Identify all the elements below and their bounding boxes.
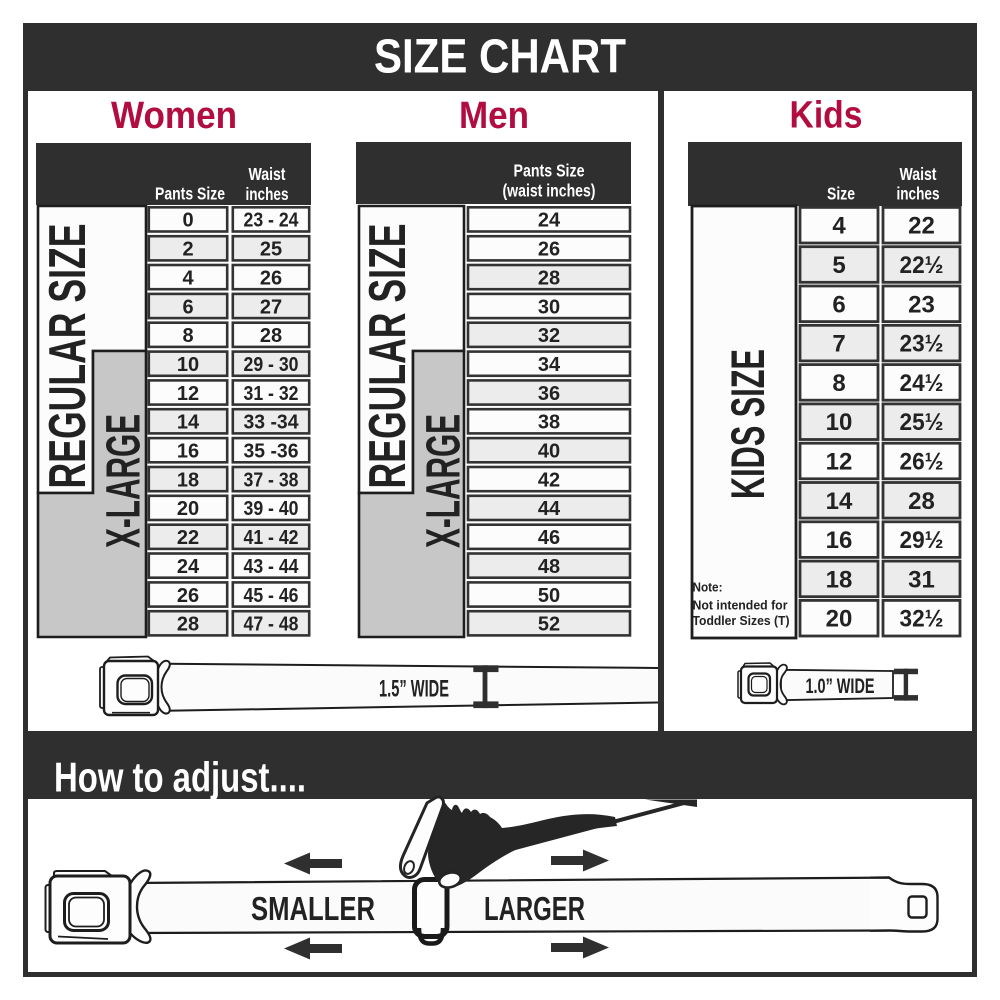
svg-text:How to adjust....: How to adjust....: [54, 754, 306, 801]
svg-text:26: 26: [538, 239, 560, 261]
svg-text:24: 24: [538, 210, 561, 232]
svg-text:52: 52: [538, 614, 560, 636]
svg-text:26½: 26½: [900, 449, 944, 476]
svg-text:4: 4: [182, 267, 194, 289]
svg-text:16: 16: [826, 527, 853, 554]
svg-text:14: 14: [826, 488, 853, 515]
svg-text:22½: 22½: [900, 252, 944, 279]
svg-text:1.5” WIDE: 1.5” WIDE: [379, 676, 449, 703]
svg-text:41 - 42: 41 - 42: [244, 527, 299, 549]
svg-text:23: 23: [908, 291, 935, 318]
svg-text:inches: inches: [246, 184, 289, 204]
svg-text:22: 22: [177, 527, 199, 549]
svg-text:5: 5: [832, 252, 845, 279]
svg-text:32: 32: [538, 325, 560, 347]
svg-text:28: 28: [538, 267, 560, 289]
svg-text:12: 12: [826, 449, 853, 476]
svg-text:26: 26: [260, 267, 282, 289]
svg-text:39 - 40: 39 - 40: [244, 498, 299, 520]
svg-text:44: 44: [538, 498, 561, 520]
svg-text:34: 34: [538, 354, 561, 376]
svg-text:18: 18: [177, 469, 199, 491]
svg-text:23 - 24: 23 - 24: [244, 210, 300, 232]
svg-text:47 - 48: 47 - 48: [244, 614, 299, 636]
svg-text:inches: inches: [897, 184, 940, 204]
svg-text:10: 10: [826, 409, 853, 436]
svg-text:31 - 32: 31 - 32: [244, 383, 299, 405]
svg-text:Waist: Waist: [900, 164, 937, 184]
svg-text:SMALLER: SMALLER: [251, 891, 375, 928]
svg-text:6: 6: [182, 296, 193, 318]
svg-text:Kids: Kids: [790, 95, 863, 137]
svg-text:Size: Size: [827, 184, 855, 204]
svg-text:8: 8: [182, 325, 193, 347]
svg-text:27: 27: [260, 296, 282, 318]
svg-text:(waist inches): (waist inches): [503, 181, 596, 201]
svg-text:8: 8: [832, 370, 845, 397]
svg-text:LARGER: LARGER: [484, 891, 585, 928]
svg-text:KIDS SIZE: KIDS SIZE: [721, 349, 774, 499]
svg-text:24: 24: [177, 556, 200, 578]
svg-text:37 - 38: 37 - 38: [244, 469, 299, 491]
svg-text:1.0” WIDE: 1.0” WIDE: [806, 675, 875, 698]
svg-text:50: 50: [538, 585, 560, 607]
svg-text:REGULAR SIZE: REGULAR SIZE: [359, 224, 417, 489]
svg-text:Pants Size: Pants Size: [155, 184, 225, 204]
svg-text:6: 6: [832, 291, 845, 318]
svg-text:32½: 32½: [900, 606, 944, 633]
svg-text:20: 20: [826, 606, 853, 633]
svg-text:Not intended for: Not intended for: [693, 598, 788, 613]
svg-text:42: 42: [538, 469, 560, 491]
svg-text:28: 28: [908, 488, 935, 515]
svg-text:25: 25: [260, 239, 282, 261]
svg-text:35 -36: 35 -36: [244, 441, 299, 463]
svg-text:28: 28: [260, 325, 282, 347]
svg-text:36: 36: [538, 383, 560, 405]
svg-text:14: 14: [177, 412, 200, 434]
svg-text:48: 48: [538, 556, 560, 578]
svg-text:X-LARGE: X-LARGE: [98, 414, 151, 548]
svg-text:Note:: Note:: [693, 580, 723, 595]
svg-text:Pants Size: Pants Size: [514, 161, 585, 181]
svg-text:43 - 44: 43 - 44: [244, 556, 300, 578]
svg-text:40: 40: [538, 441, 560, 463]
svg-text:22: 22: [908, 213, 935, 240]
svg-text:25½: 25½: [900, 409, 944, 436]
svg-text:REGULAR SIZE: REGULAR SIZE: [39, 224, 97, 489]
svg-text:46: 46: [538, 527, 560, 549]
svg-text:38: 38: [538, 412, 560, 434]
svg-text:2: 2: [182, 239, 193, 261]
svg-text:26: 26: [177, 585, 199, 607]
svg-text:29½: 29½: [900, 527, 944, 554]
svg-text:Waist: Waist: [249, 164, 286, 184]
svg-text:20: 20: [177, 498, 199, 520]
svg-text:18: 18: [826, 566, 853, 593]
svg-text:24½: 24½: [900, 370, 944, 397]
svg-text:7: 7: [832, 331, 845, 358]
svg-text:0: 0: [182, 210, 193, 232]
svg-text:31: 31: [908, 566, 935, 593]
svg-text:12: 12: [177, 383, 199, 405]
svg-text:Women: Women: [111, 95, 237, 137]
svg-text:29 - 30: 29 - 30: [244, 354, 299, 376]
svg-text:Men: Men: [459, 95, 529, 137]
svg-text:23½: 23½: [900, 331, 944, 358]
svg-text:SIZE CHART: SIZE CHART: [374, 31, 626, 84]
svg-text:16: 16: [177, 441, 199, 463]
svg-text:Toddler Sizes (T): Toddler Sizes (T): [693, 613, 790, 628]
svg-text:10: 10: [177, 354, 199, 376]
svg-text:X-LARGE: X-LARGE: [418, 414, 471, 548]
svg-text:45 - 46: 45 - 46: [244, 585, 299, 607]
svg-text:30: 30: [538, 296, 560, 318]
svg-text:33 -34: 33 -34: [244, 412, 300, 434]
svg-text:4: 4: [832, 213, 846, 240]
svg-text:28: 28: [177, 614, 199, 636]
